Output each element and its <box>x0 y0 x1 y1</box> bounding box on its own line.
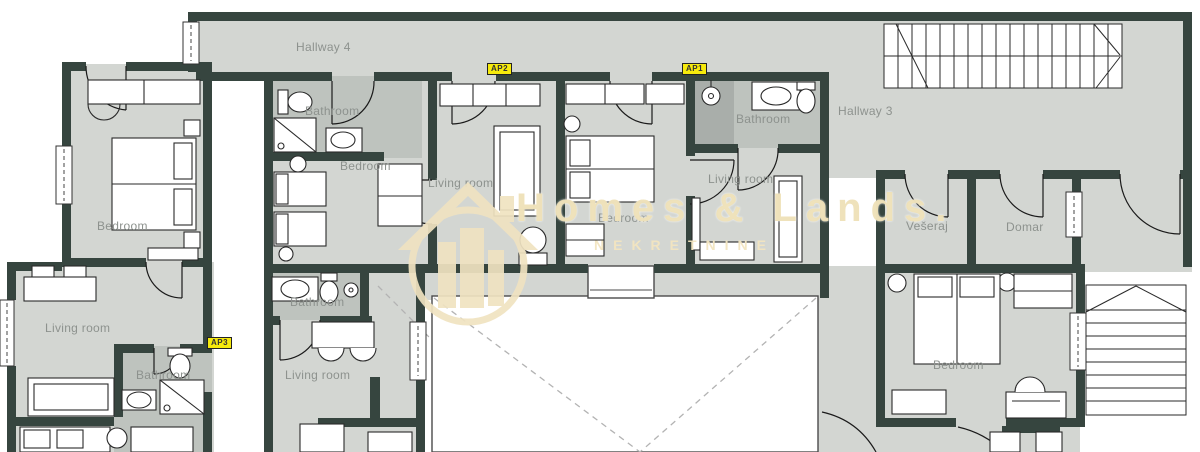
apartment-badge-ap2: AP2 <box>487 63 512 75</box>
room-label-living-room-bottom-left: Living room <box>45 321 110 335</box>
room-label-bathroom-ap1: Bathroom <box>736 112 790 126</box>
room-label-bathroom-mid: Bathroom <box>290 295 344 309</box>
staircase-lower <box>1086 285 1186 415</box>
room-label-living-room-ap1: Living room <box>708 172 773 186</box>
floor-plan: Hallway 4 Hallway 3 Bedroom Bathroom Bed… <box>0 0 1200 452</box>
room-label-hallway-3: Hallway 3 <box>838 104 893 118</box>
apartment-badge-ap3: AP3 <box>207 337 232 349</box>
room-label-bedroom-right: Bedroom <box>933 358 984 372</box>
room-label-domar: Domar <box>1006 220 1044 234</box>
room-label-bedroom-ap2: Bedroom <box>340 159 391 173</box>
room-label-living-room-mid: Living room <box>285 368 350 382</box>
staircase-upper <box>884 24 1122 88</box>
room-label-bathroom-ap2-upper: Bathroom <box>305 104 359 118</box>
room-label-hallway-4: Hallway 4 <box>296 40 351 54</box>
watermark-subtitle: NEKRETNINE <box>594 237 775 253</box>
apartment-badge-ap1: AP1 <box>682 63 707 75</box>
room-label-bedroom-top-left: Bedroom <box>97 219 148 233</box>
watermark-title: Homes & Lands. <box>516 186 955 231</box>
room-label-bathroom-bottom-left: Bathroom <box>136 368 190 382</box>
